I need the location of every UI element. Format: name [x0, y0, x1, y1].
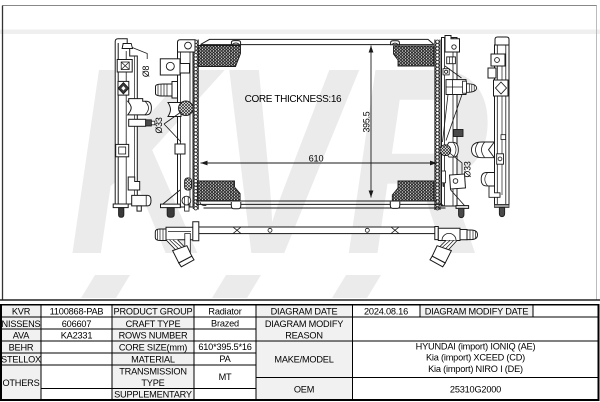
svg-text:606607: 606607 [62, 319, 92, 329]
svg-text:Ø8: Ø8 [141, 66, 151, 78]
svg-text:KVR: KVR [12, 307, 31, 317]
svg-text:AVA: AVA [13, 331, 30, 341]
svg-text:SUPPLEMENTARY: SUPPLEMENTARY [114, 390, 192, 400]
svg-text:TRANSMISSION: TRANSMISSION [119, 367, 187, 377]
svg-text:Kia (import) NIRO I (DE): Kia (import) NIRO I (DE) [428, 364, 523, 374]
svg-text:MAKE/MODEL: MAKE/MODEL [274, 355, 333, 365]
svg-text:Brazed: Brazed [211, 319, 239, 329]
svg-text:610*395.5*16: 610*395.5*16 [198, 342, 251, 352]
svg-text:610: 610 [309, 153, 324, 163]
svg-text:HYUNDAI (import) IONIQ (AE): HYUNDAI (import) IONIQ (AE) [416, 341, 536, 351]
svg-text:Kia (import) XCEED (CD): Kia (import) XCEED (CD) [426, 353, 525, 363]
svg-text:DIAGRAM MODIFY DATE: DIAGRAM MODIFY DATE [425, 307, 529, 317]
svg-text:KA2331: KA2331 [61, 331, 93, 341]
svg-text:Radiator: Radiator [208, 306, 241, 316]
svg-text:DIAGRAM MODIFY: DIAGRAM MODIFY [265, 319, 343, 329]
svg-text:MT: MT [219, 372, 232, 382]
svg-text:NISSENS: NISSENS [2, 319, 41, 329]
svg-text:OTHERS: OTHERS [2, 378, 39, 388]
svg-text:2024.08.16: 2024.08.16 [364, 306, 408, 316]
svg-text:1100868-PAB: 1100868-PAB [50, 307, 104, 317]
svg-text:REASON: REASON [285, 331, 323, 341]
svg-text:ROWS NUMBER: ROWS NUMBER [119, 331, 188, 341]
svg-text:STELLOX: STELLOX [1, 355, 41, 365]
svg-text:CRAFT TYPE: CRAFT TYPE [126, 319, 181, 329]
svg-text:BEHR: BEHR [9, 343, 34, 353]
svg-text:CORE SIZE(mm): CORE SIZE(mm) [119, 343, 187, 353]
svg-text:25310G2000: 25310G2000 [450, 384, 501, 394]
svg-text:PA: PA [219, 354, 231, 364]
svg-text:PRODUCT GROUP: PRODUCT GROUP [114, 307, 193, 317]
svg-text:MATERIAL: MATERIAL [131, 355, 175, 365]
svg-text:CORE THICKNESS:16: CORE THICKNESS:16 [245, 94, 342, 105]
svg-text:DIAGRAM DATE: DIAGRAM DATE [271, 307, 338, 317]
svg-text:TYPE: TYPE [141, 378, 164, 388]
svg-text:395.5: 395.5 [361, 111, 371, 132]
svg-text:OEM: OEM [294, 384, 314, 394]
svg-text:Ø33: Ø33 [154, 117, 164, 133]
